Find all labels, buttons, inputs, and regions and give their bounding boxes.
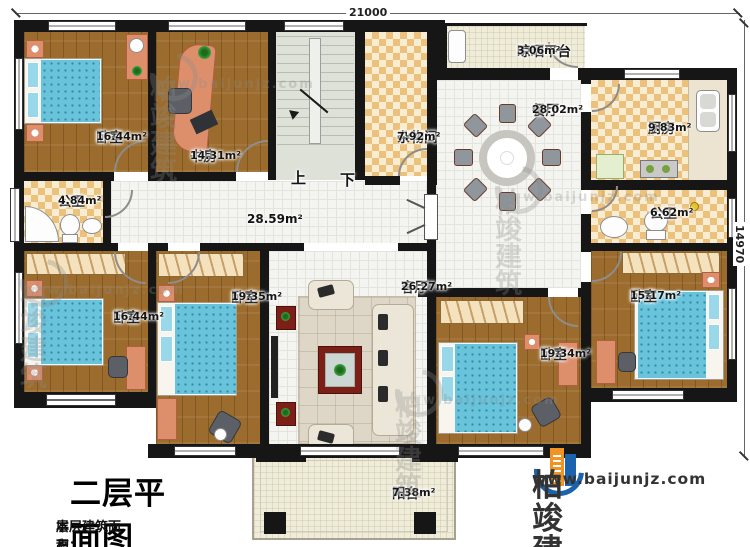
dimension-top-value: 21000 [346,6,390,19]
stove-burner [662,165,670,173]
wall [200,243,268,251]
washing-machine [448,30,466,63]
wall [268,20,276,180]
balcony-sliding-door [300,446,400,456]
nightstand [524,334,540,350]
wall [581,243,727,251]
floor-plan: 卧室16.44m² 书房14.31m² 杂物间7.92m² 晾晒平台3.06m²… [0,0,750,547]
wall [14,172,114,181]
wall [260,251,269,458]
wall [437,68,550,80]
wall [581,68,591,84]
dining-chair [454,149,473,166]
wall [365,176,400,185]
wardrobe [622,252,720,274]
sink [82,218,102,234]
plant [198,46,211,59]
fridge [596,154,624,179]
stair-stringer [309,38,321,144]
dining-chair [499,192,516,211]
dimension-right-value: 14970 [733,222,746,266]
window [10,188,20,242]
plant [281,312,290,321]
sofa-cushion [378,386,388,402]
desk [126,346,146,390]
window [612,390,684,400]
bed-pillow [27,92,39,118]
window [284,21,344,31]
wardrobe [26,253,126,275]
desk [596,340,616,384]
window [728,94,736,152]
bed-pillow [27,332,39,358]
window [174,446,236,456]
wall [148,243,168,251]
bed-blanket [175,304,236,394]
desk [157,398,177,440]
balcony-pillar [264,512,286,534]
window [624,69,680,79]
plant [281,408,290,417]
plant [132,66,142,76]
wall [156,172,236,181]
sink [600,216,628,238]
french-door [424,194,438,240]
kitchen-sink-basin [700,112,716,127]
lamp [129,38,144,53]
tv [271,336,278,398]
sofa-cushion [378,314,388,330]
nightstand [26,280,43,297]
floor-lamp [518,418,532,432]
bed-pillow [708,294,720,320]
chair [108,356,128,378]
window [46,394,116,406]
sofa-cushion [378,350,388,366]
floor-lamp [214,428,227,441]
toilet-tank [646,230,666,240]
bed-pillow [27,62,39,88]
nightstand [26,364,43,381]
window [15,272,23,344]
nightstand [26,40,44,58]
kitchen-sink-basin [700,94,716,109]
wall [148,20,156,180]
nightstand [26,124,44,142]
wall [268,243,304,251]
wall [427,20,437,185]
wall [581,282,591,458]
bed-pillow [441,376,454,402]
wall [445,23,587,26]
toilet-bowl [60,214,80,236]
nightstand [158,285,175,302]
wall [14,243,118,251]
plant [334,364,346,376]
floor-height-label: 层高：3.3m [56,516,93,547]
dining-chair [542,149,561,166]
wall [427,238,436,458]
chair [618,352,636,372]
office-chair [168,88,192,114]
dining-table-center [500,151,514,165]
nightstand [702,272,720,288]
wardrobe [440,300,524,324]
dining-chair [499,104,516,123]
window [48,21,116,31]
balcony-wall-stub [412,446,458,462]
bed-pillow [160,336,173,362]
balcony-pillar [414,512,436,534]
window [168,21,246,31]
window [728,288,736,360]
wall [355,20,365,180]
bed-pillow [708,324,720,350]
balcony-wall-stub [256,446,306,462]
bed-pillow [27,302,39,328]
wall [427,181,436,194]
wall [581,112,591,186]
stove-burner [646,165,654,173]
bed-pillow [441,346,454,372]
window [15,58,23,130]
bed-blanket [41,300,102,364]
brand-website: www.baijunjz.com [532,470,706,488]
wall [148,172,156,181]
bed-blanket [455,344,516,432]
toilet-tank [62,234,78,243]
bed-blanket [41,60,100,122]
